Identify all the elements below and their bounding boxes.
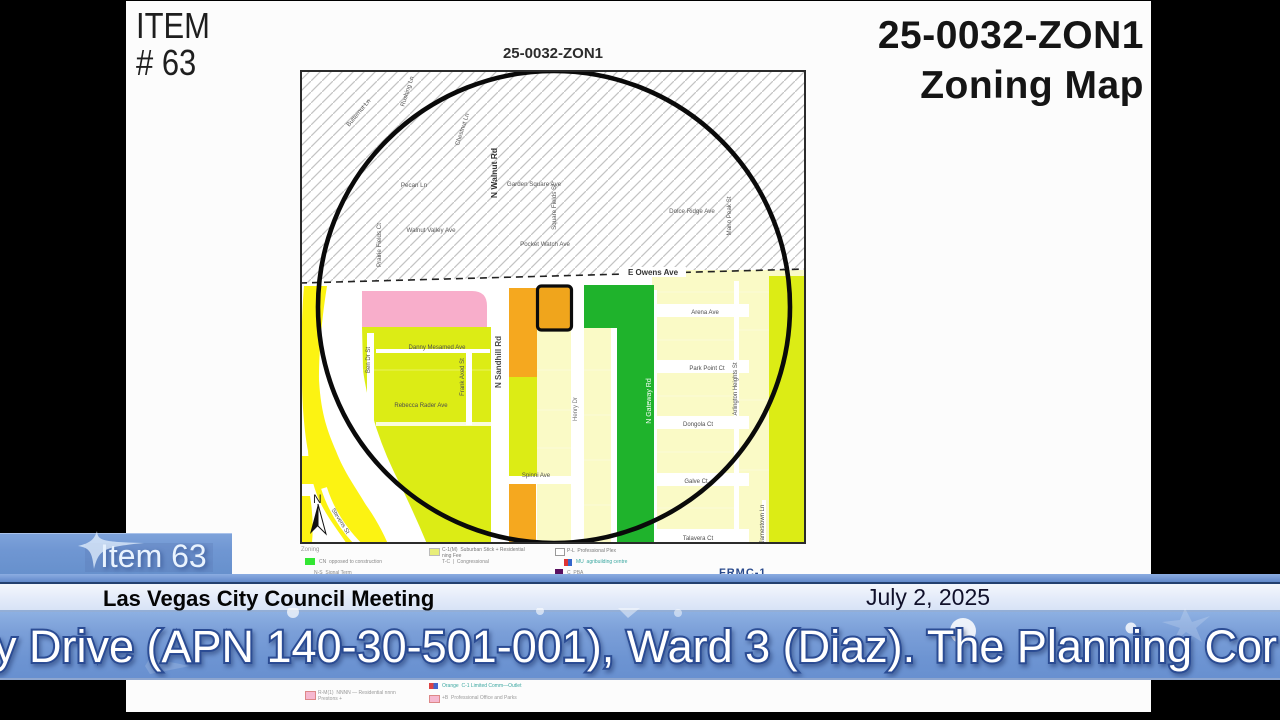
svg-text:Jamestown Ln: Jamestown Ln <box>760 505 766 544</box>
svg-text:Ben Dr St: Ben Dr St <box>366 347 372 373</box>
svg-text:Frank Axed St: Frank Axed St <box>460 358 466 396</box>
svg-text:Arena Ave: Arena Ave <box>691 310 719 316</box>
svg-text:Square Fields St: Square Fields St <box>551 184 558 230</box>
svg-text:Arlington Heights St: Arlington Heights St <box>733 362 739 415</box>
svg-text:N Gateway Rd: N Gateway Rd <box>646 378 653 424</box>
svg-text:Prairie Fields Ct: Prairie Fields Ct <box>376 223 383 267</box>
svg-text:Talavera Ct: Talavera Ct <box>683 536 714 542</box>
svg-text:Dolce Ridge Ave: Dolce Ridge Ave <box>669 208 715 215</box>
svg-text:Galve Ct: Galve Ct <box>684 479 708 485</box>
svg-text:y Drive (APN 140-30-501-001),: y Drive (APN 140-30-501-001), Ward 3 (Di… <box>0 621 1277 672</box>
svg-text:Pecan Ln: Pecan Ln <box>401 182 428 189</box>
svg-text:Park Point Ct: Park Point Ct <box>689 366 725 372</box>
svg-text:N Sandhill Rd: N Sandhill Rd <box>494 336 503 388</box>
svg-text:N: N <box>313 492 322 506</box>
svg-text:Rebecca Rader Ave: Rebecca Rader Ave <box>394 403 448 409</box>
svg-text:Mano Peak St: Mano Peak St <box>726 196 733 235</box>
svg-text:E Owens Ave: E Owens Ave <box>628 268 679 277</box>
svg-text:N Walnut Rd: N Walnut Rd <box>489 148 499 198</box>
svg-text:Walnut Valley Ave: Walnut Valley Ave <box>406 227 456 234</box>
svg-text:Dongola Ct: Dongola Ct <box>683 422 713 428</box>
svg-text:Spinni Ave: Spinni Ave <box>522 473 551 479</box>
svg-text:Danny Mesamed Ave: Danny Mesamed Ave <box>409 345 467 351</box>
svg-text:Henry Dr: Henry Dr <box>573 397 579 421</box>
svg-text:Pocket Watch Ave: Pocket Watch Ave <box>520 241 570 248</box>
